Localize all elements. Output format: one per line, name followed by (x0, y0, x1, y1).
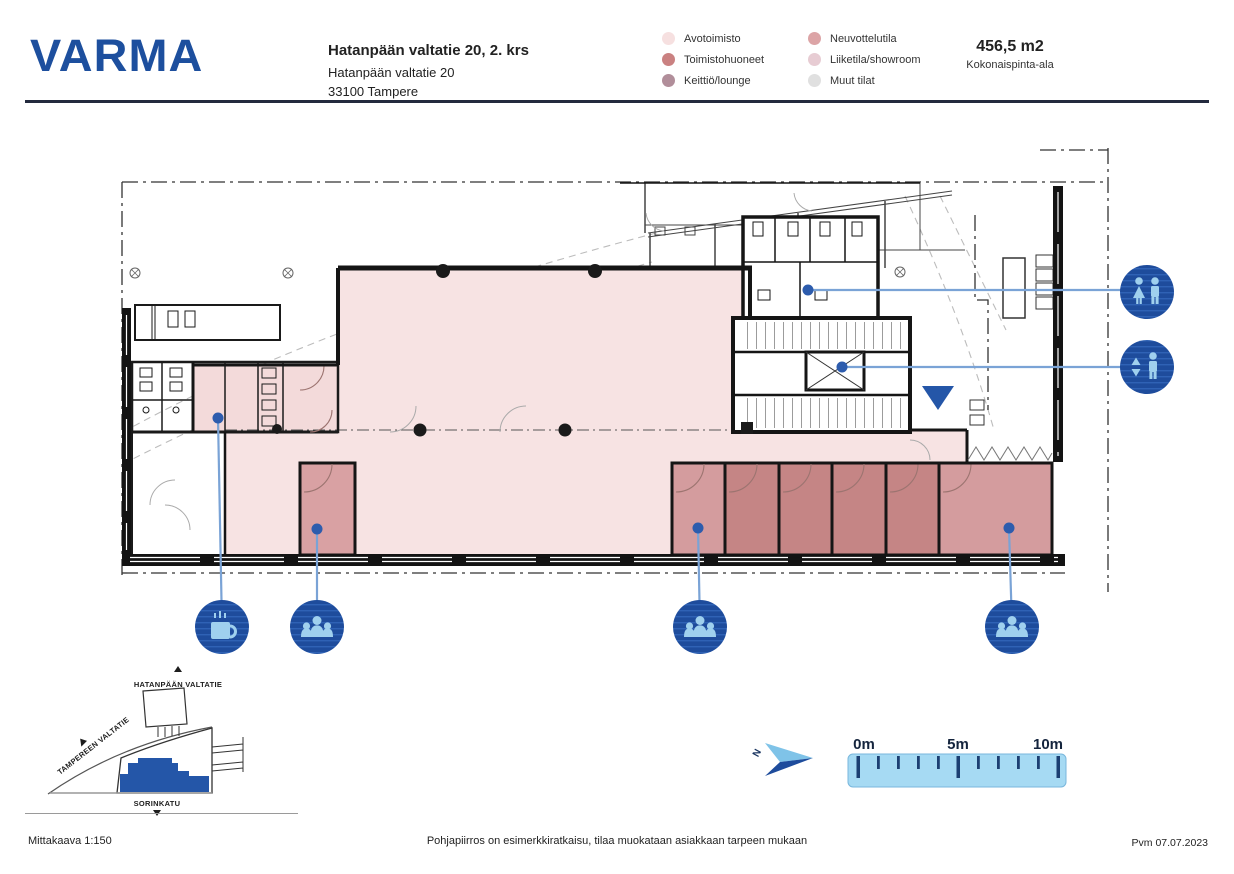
legend-column-1: Avotoimisto Toimistohuoneet Keittiö/loun… (662, 28, 764, 91)
north-arrow: N (751, 743, 813, 776)
legend-label: Muut tilat (830, 75, 875, 87)
office-room-2 (779, 463, 832, 555)
legend-item-liiketila-showroom: Liiketila/showroom (808, 49, 920, 70)
minimap-divider (25, 813, 298, 814)
office-room-4 (886, 463, 939, 555)
meeting-room-3 (939, 463, 1052, 555)
street-top-label: HATANPÄÄN VALTATIE (134, 680, 222, 689)
minimap-building-highlight (120, 758, 209, 792)
header-divider (25, 100, 1209, 103)
open-office-bottom (355, 463, 672, 555)
page-title: Hatanpään valtatie 20, 2. krs (328, 40, 529, 63)
entrance-arrow (922, 386, 954, 410)
wc-icon (1120, 265, 1174, 319)
legend-dot-liiketila-showroom (808, 53, 821, 66)
legend-dot-toimistohuoneet (662, 53, 675, 66)
legend-label: Liiketila/showroom (830, 54, 920, 66)
north-label: N (751, 747, 764, 759)
street-bottom-label: SORINKATU (134, 799, 181, 808)
stair-treads-upper (744, 322, 904, 349)
total-area-label: Kokonaispinta-ala (930, 59, 1090, 71)
floor-plan-canvas: 0m 5m 10m N HATANPÄÄN VALTATIE TAMPEREEN… (0, 0, 1234, 874)
scale-5m: 5m (947, 736, 969, 753)
legend-item-toimistohuoneet: Toimistohuoneet (662, 49, 764, 70)
legend-item-keittio-lounge: Keittiö/lounge (662, 70, 764, 91)
open-office-band (225, 430, 967, 465)
open-office-left (225, 463, 300, 555)
legend-dot-neuvottelutila (808, 32, 821, 45)
right-lobby (970, 255, 1053, 425)
legend-dot-keittio-lounge (662, 74, 675, 87)
total-area-value: 456,5 m2 (930, 38, 1090, 56)
legend-dot-avotoimisto (662, 32, 675, 45)
stair-treads-lower (744, 398, 904, 428)
title-block: Hatanpään valtatie 20, 2. krs Hatanpään … (328, 40, 529, 102)
legend-label: Toimistohuoneet (684, 54, 764, 66)
stairwell (733, 318, 910, 432)
office-room-1 (725, 463, 779, 555)
address-line-2: 33100 Tampere (328, 82, 529, 102)
date-note: Pvm 07.07.2023 (1132, 837, 1208, 849)
legend-item-muut-tilat: Muut tilat (808, 70, 920, 91)
total-area-block: 456,5 m2 Kokonaispinta-ala (930, 38, 1090, 71)
legend-item-avotoimisto: Avotoimisto (662, 28, 764, 49)
address-line-1: Hatanpään valtatie 20 (328, 63, 529, 83)
location-minimap: HATANPÄÄN VALTATIE TAMPEREEN VALTATIE SO… (48, 666, 243, 816)
legend-dot-muut-tilat (808, 74, 821, 87)
meeting-icon-glyphs (301, 616, 1028, 637)
varma-logo: VARMA (30, 30, 203, 82)
legend-label: Avotoimisto (684, 33, 741, 45)
wc-block (743, 217, 878, 318)
legend-column-2: Neuvottelutila Liiketila/showroom Muut t… (808, 28, 920, 91)
hatch-strip (968, 447, 1052, 460)
scale-10m: 10m (1033, 736, 1063, 753)
legend-label: Neuvottelutila (830, 33, 897, 45)
scale-0m: 0m (853, 736, 875, 753)
disclaimer-note: Pohjapiirros on esimerkkiratkaisu, tilaa… (0, 835, 1234, 847)
legend-item-neuvottelutila: Neuvottelutila (808, 28, 920, 49)
office-room-3 (832, 463, 886, 555)
elevator-icon (1120, 340, 1174, 394)
legend-label: Keittiö/lounge (684, 75, 751, 87)
meeting-room-1 (300, 463, 355, 555)
scale-bar: 0m 5m 10m (848, 736, 1066, 787)
